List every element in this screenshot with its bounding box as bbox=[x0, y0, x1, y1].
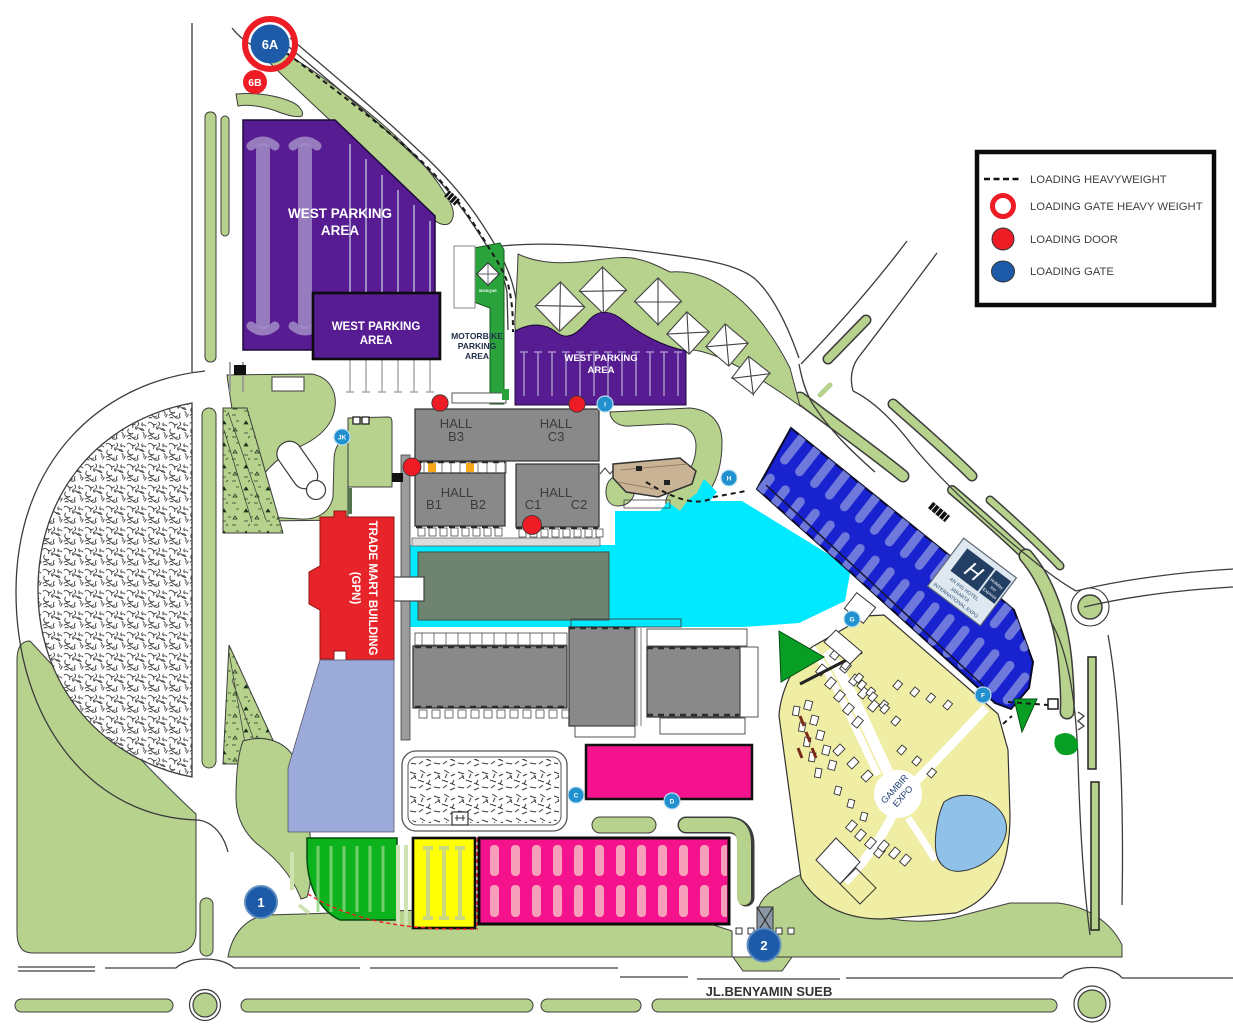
svg-text:WEST PARKING: WEST PARKING bbox=[564, 353, 637, 364]
svg-text:6A: 6A bbox=[262, 37, 279, 52]
svg-text:LOADING DOOR: LOADING DOOR bbox=[1030, 234, 1118, 246]
svg-text:LOADING GATE: LOADING GATE bbox=[1030, 266, 1114, 278]
svg-text:MOTORBIKE: MOTORBIKE bbox=[451, 331, 503, 341]
svg-text:WEST PARKING: WEST PARKING bbox=[288, 206, 392, 221]
svg-text:D: D bbox=[670, 799, 675, 806]
svg-text:JL.BENYAMIN SUEB: JL.BENYAMIN SUEB bbox=[706, 984, 833, 999]
svg-text:HALL: HALL bbox=[540, 485, 573, 500]
svg-text:HALL: HALL bbox=[441, 485, 474, 500]
svg-text:C1: C1 bbox=[525, 497, 542, 512]
svg-text:AREA: AREA bbox=[465, 351, 489, 361]
svg-text:AREA: AREA bbox=[321, 223, 360, 238]
svg-text:MOSQUE: MOSQUE bbox=[479, 288, 497, 293]
svg-text:6B: 6B bbox=[248, 77, 262, 89]
svg-text:B3: B3 bbox=[448, 429, 464, 444]
svg-text:C2: C2 bbox=[571, 497, 588, 512]
svg-text:WEST PARKING: WEST PARKING bbox=[332, 321, 421, 333]
svg-text:JK: JK bbox=[338, 435, 347, 442]
svg-text:C3: C3 bbox=[548, 429, 565, 444]
svg-text:C: C bbox=[574, 793, 579, 800]
svg-text:F: F bbox=[981, 693, 985, 700]
svg-text:(GPN): (GPN) bbox=[349, 572, 361, 605]
svg-text:1: 1 bbox=[257, 895, 264, 910]
svg-text:2: 2 bbox=[760, 938, 767, 953]
svg-text:H: H bbox=[727, 476, 732, 483]
svg-text:LOADING GATE HEAVY WEIGHT: LOADING GATE HEAVY WEIGHT bbox=[1030, 201, 1203, 213]
svg-text:AREA: AREA bbox=[588, 365, 615, 376]
svg-text:LOADING HEAVYWEIGHT: LOADING HEAVYWEIGHT bbox=[1030, 174, 1167, 186]
svg-text:AREA: AREA bbox=[360, 335, 393, 347]
svg-text:B1: B1 bbox=[426, 497, 442, 512]
svg-text:I: I bbox=[604, 402, 606, 409]
svg-text:B2: B2 bbox=[470, 497, 486, 512]
svg-text:PARKING: PARKING bbox=[458, 341, 497, 351]
svg-text:G: G bbox=[849, 617, 854, 624]
svg-text:TRADE MART BUILDING: TRADE MART BUILDING bbox=[366, 521, 378, 656]
